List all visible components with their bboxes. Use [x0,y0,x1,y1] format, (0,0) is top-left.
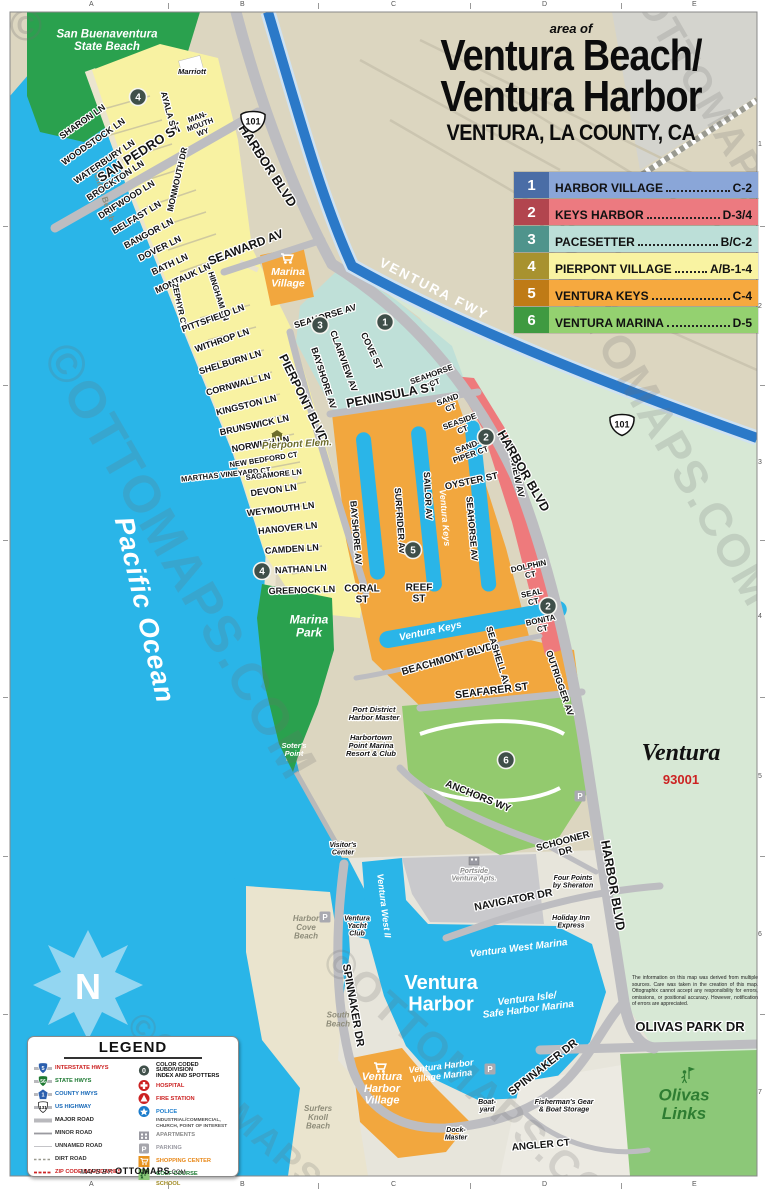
index-row-2: 2KEYS HARBORD-3/4 [514,199,758,225]
legend-item-label: APARTMENTS [156,1132,195,1138]
svg-text:2: 2 [545,602,551,613]
grid-reference: D-3/4 [723,209,752,221]
grid-tick [760,540,765,541]
legend-item-fire-station: FIRE STATION [135,1092,232,1105]
grid-number-right-6: 6 [758,931,762,938]
map-label-harbortown-point-marina-resort-club: HarbortownPoint MarinaResort & Club [346,733,396,758]
state-legend-icon: 56 [34,1075,52,1088]
grid-tick [3,540,8,541]
svg-text:2: 2 [483,433,489,444]
grid-tick [470,3,471,9]
parking-icon: P [575,791,586,802]
grid-reference: C-2 [733,182,752,194]
spotter-legend-icon: 0 [135,1064,153,1077]
interstate-legend-icon: 5 [34,1062,52,1075]
compass-north-letter: N [75,966,101,1007]
compass-rose: N [33,930,143,1040]
parking-icon: P [485,1064,496,1075]
dotted-leader [666,190,730,192]
subdivision-entry: HARBOR VILLAGEC-2 [549,172,758,198]
legend-item-state-hwys: 56STATE HWYS [34,1075,131,1088]
grid-letter-top-E: E [692,1,697,8]
svg-text:1: 1 [41,1092,44,1098]
grid-number-right-5: 5 [758,773,762,780]
credit-prefix: MAPS BY: [80,1169,113,1176]
legend-left-column: 5INTERSTATE HWYS56STATE HWYS1COUNTY HWYS… [34,1062,131,1163]
dotted-leader [675,271,707,273]
grid-tick [760,1014,765,1015]
grid-tick [3,856,8,857]
title-line2: Ventura Harbor [411,76,731,117]
legend-item-minor-road: MINOR ROAD [34,1127,131,1140]
subdivision-number-badge: 1 [514,172,549,198]
title-subtitle: VENTURA, LA COUNTY, CA [404,120,739,146]
map-label-boat-yard: Boat-yard [478,1099,497,1114]
svg-text:P: P [322,913,328,922]
subdivision-name: VENTURA KEYS [555,290,649,302]
subdivision-number-badge: 2 [514,199,549,225]
map-page: N ©OTTOMAPS.COM©OTTOMAPS.COM©OTTOMAPS.CO… [0,0,769,1200]
dotted-leader [652,298,730,300]
map-label-93001: 93001 [663,772,699,787]
subdivision-marker-1: 1 [377,314,394,331]
subdivision-number-badge: 6 [514,307,549,333]
svg-text:P: P [577,792,583,801]
parking-icon: P [320,912,331,923]
legend-item-parking: PPARKING [135,1142,232,1155]
legend-item-label: POLICE [156,1109,177,1115]
grid-reference: C-4 [733,290,752,302]
grid-tick [3,385,8,386]
map-label-port-district-harbor-master: Port DistrictHarbor Master [349,705,401,722]
legend-item-label: INDUSTRIAL/COMMERCIAL,CHURCH, POINT OF I… [156,1118,227,1129]
legend-item-major-road: MAJOR ROAD [34,1114,131,1127]
subdivision-marker-2: 2 [478,429,495,446]
apartments-icon [469,857,479,865]
legend-item-label: MAJOR ROAD [55,1117,94,1123]
legend-item-label: UNNAMED ROAD [55,1143,102,1149]
svg-text:3: 3 [317,321,323,332]
grid-tick [621,3,622,9]
subdivision-marker-4: 4 [254,563,271,580]
svg-text:0: 0 [142,1068,146,1075]
map-title-block: area of Ventura Beach/ Ventura Harbor VE… [385,22,757,146]
grid-letter-bottom-B: B [240,1181,245,1188]
svg-text:4: 4 [135,93,141,104]
subdivision-marker-3: 3 [312,317,329,334]
subdivision-marker-6: 6 [498,752,515,769]
dirt-legend-icon [34,1153,52,1166]
map-label-olivas-park-dr: OLIVAS PARK DR [635,1019,745,1034]
legend-item-police: POLICE [135,1105,232,1118]
legend-item-label: FIRE STATION [156,1096,195,1102]
grid-number-right-2: 2 [758,303,762,310]
legend-item-dirt-road: DIRT ROAD [34,1153,131,1166]
svg-text:101: 101 [614,420,629,430]
legend-item-school: SCHOOL [135,1181,232,1187]
legend-item-label: STATE HWYS [55,1078,91,1084]
grid-reference: D-5 [733,317,752,329]
grid-number-right-7: 7 [758,1089,762,1096]
subdivision-entry: VENTURA MARINAD-5 [549,307,758,333]
legend-title: LEGEND [64,1040,203,1059]
subdivision-marker-4: 4 [130,89,147,106]
legend-item-us-highway: 131US HIGHWAY [34,1101,131,1114]
index-row-3: 3PACESETTERB/C-2 [514,226,758,252]
police-legend-icon [135,1105,153,1118]
subdivision-entry: PIERPONT VILLAGEA/B-1-4 [549,253,758,279]
subdivision-marker-5: 5 [405,542,422,559]
map-label-ventura: Ventura [642,740,721,766]
grid-letter-bottom-A: A [89,1181,94,1188]
legend-item-hospital: HOSPITAL [135,1079,232,1092]
subdivision-name: PACESETTER [555,236,635,248]
dotted-leader [667,325,730,327]
index-row-5: 5VENTURA KEYSC-4 [514,280,758,306]
legend-item-label: SCHOOL [156,1181,180,1187]
subdivision-entry: VENTURA KEYSC-4 [549,280,758,306]
index-row-1: 1HARBOR VILLAGEC-2 [514,172,758,198]
grid-tick [3,697,8,698]
parking-legend-icon: P [135,1142,153,1155]
index-row-6: 6VENTURA MARINAD-5 [514,307,758,333]
map-label-fisherman-s-gear-boat-storage: Fisherman's Gear& Boat Storage [535,1099,595,1114]
grid-tick [3,1014,8,1015]
legend-item-label: MINOR ROAD [55,1130,92,1136]
map-label-ventura-harbor-village: VenturaHarborVillage [362,1071,403,1107]
grid-letter-top-C: C [391,1,396,8]
map-label-soter-s-point: Soter'sPoint [281,741,306,758]
zip-legend-icon [34,1166,52,1179]
title-line1: Ventura Beach/ [411,35,731,76]
map-label-visitor-s-center: Visitor'sCenter [329,842,356,857]
grid-tick [760,697,765,698]
legend-right-column: 0COLOR CODED SUBDIVISIONINDEX AND SPOTTE… [135,1062,232,1163]
legend-item-label: COUNTY HWYS [55,1091,98,1097]
subdivision-name: HARBOR VILLAGE [555,182,663,194]
grid-tick [760,385,765,386]
subdivision-entry: KEYS HARBORD-3/4 [549,199,758,225]
svg-text:5: 5 [41,1066,44,1072]
subdivision-marker-2: 2 [540,598,557,615]
subdivision-entry: PACESETTERB/C-2 [549,226,758,252]
map-label-marriott: Marriott [178,67,206,76]
dotted-leader [647,217,720,219]
svg-text:P: P [487,1065,493,1074]
legend-box: LEGEND 5INTERSTATE HWYS56STATE HWYS1COUN… [27,1036,239,1177]
grid-letter-top-B: B [240,1,245,8]
grid-number-right-4: 4 [758,613,762,620]
subdivision-number-badge: 4 [514,253,549,279]
subdivision-name: KEYS HARBOR [555,209,644,221]
legend-item-label: US HIGHWAY [55,1104,91,1110]
legend-item-label: COLOR CODED SUBDIVISIONINDEX AND SPOTTER… [156,1062,232,1080]
map-label-marina-village: MarinaVillage [271,266,305,289]
grid-tick [318,3,319,9]
grid-reference: A/B-1-4 [710,263,752,275]
legend-item-industrial-commercial: INDUSTRIAL/COMMERCIAL,CHURCH, POINT OF I… [135,1118,232,1129]
legend-item-unnamed-road: UNNAMED ROAD [34,1140,131,1153]
svg-text:P: P [141,1144,146,1153]
map-label-south-beach: SouthBeach [326,1011,350,1029]
grid-tick [318,1183,319,1189]
svg-text:6: 6 [503,756,509,767]
us-legend-icon: 131 [34,1101,52,1114]
legend-item-label: DIRT ROAD [55,1156,87,1162]
index-row-4: 4PIERPONT VILLAGEA/B-1-4 [514,253,758,279]
legend-item-interstate-hwys: 5INTERSTATE HWYS [34,1062,131,1075]
grid-tick [760,226,765,227]
legend-item-color-coded-subdivision: 0COLOR CODED SUBDIVISIONINDEX AND SPOTTE… [135,1062,232,1080]
grid-letter-top-D: D [542,1,547,8]
county-legend-icon: 1 [34,1088,52,1101]
svg-text:5: 5 [410,546,416,557]
grid-tick [621,1183,622,1189]
apartments-legend-icon [135,1129,153,1142]
grid-tick [760,856,765,857]
fire-legend-icon [135,1092,153,1105]
grid-letter-bottom-E: E [692,1181,697,1188]
grid-letter-bottom-D: D [542,1181,547,1188]
svg-text:101: 101 [245,117,260,127]
legend-item-label: SHOPPING CENTER [156,1158,211,1164]
legend-item-apartments: APARTMENTS [135,1129,232,1142]
grid-tick [470,1183,471,1189]
map-label-dock-master: Dock-Master [445,1127,469,1142]
unnamed-legend-icon [34,1140,52,1153]
subdivision-index-table: 1HARBOR VILLAGEC-22KEYS HARBORD-3/43PACE… [514,172,758,334]
legend-item-county-hwys: 1COUNTY HWYS [34,1088,131,1101]
legend-item-label: PARKING [156,1145,182,1151]
minor-legend-icon [34,1127,52,1140]
major-legend-icon [34,1114,52,1127]
svg-text:4: 4 [259,567,265,578]
map-label-four-points-by-sheraton: Four Pointsby Sheraton [553,875,593,890]
svg-text:131: 131 [39,1105,47,1110]
legend-item-label: INTERSTATE HWYS [55,1065,109,1071]
subdivision-name: VENTURA MARINA [555,317,664,329]
subdivision-name: PIERPONT VILLAGE [555,263,672,275]
grid-letter-top-A: A [89,1,94,8]
map-label-olivas-links: OlivasLinks [658,1086,709,1123]
grid-reference: B/C-2 [721,236,752,248]
hospital-legend-icon [135,1079,153,1092]
svg-text:56: 56 [40,1079,46,1085]
map-label-holiday-inn-express: Holiday InnExpress [552,915,590,930]
grid-tick [168,3,169,9]
subdivision-number-badge: 3 [514,226,549,252]
grid-letter-bottom-C: C [391,1181,396,1188]
legend-item-label: HOSPITAL [156,1083,184,1089]
dotted-leader [638,244,718,246]
subdivision-number-badge: 5 [514,280,549,306]
disclaimer-text: The information on this map was derived … [632,975,758,1008]
map-label-ventura-harbor: VenturaHarbor [404,972,478,1016]
grid-number-right-1: 1 [758,141,762,148]
grid-number-right-3: 3 [758,459,762,466]
credit-brand: OTTOMAPS [115,1166,170,1176]
grid-tick [3,226,8,227]
credit-suffix: .COM [170,1170,186,1176]
svg-text:1: 1 [382,318,388,329]
